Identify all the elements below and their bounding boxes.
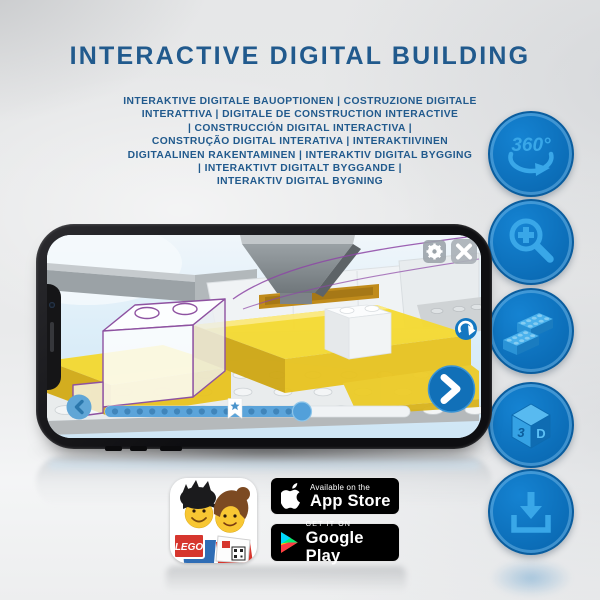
- subtitle-line: DIGITAALINEN RAKENTAMINEN | INTERAKTIV D…: [63, 149, 537, 162]
- lego-bricks-icon: [501, 301, 561, 361]
- subtitle-line: INTERAKTIV DIGITAL BYGNING: [63, 175, 537, 188]
- phone-reflection: [36, 456, 492, 508]
- app-store-badge-top-text: Available on the: [310, 483, 391, 492]
- google-play-icon: [281, 531, 298, 554]
- cube-d-label: D: [536, 426, 545, 441]
- phone-button-bump: [105, 446, 122, 451]
- lego-app-icon[interactable]: LEGO: [170, 478, 257, 563]
- promo-page: INTERACTIVE DIGITAL BUILDING INTERAKTIVE…: [0, 0, 600, 600]
- google-play-badge-bottom-text: Google Play: [306, 529, 391, 565]
- app-store-badge[interactable]: Available on the App Store: [270, 477, 400, 515]
- cube-3-label: 3: [517, 425, 525, 440]
- subtitle-line: | INTERAKTIVT DIGITALT BYGGANDE |: [63, 162, 537, 175]
- feature-icon-zoom: [488, 199, 574, 285]
- lego-app-icon-art: LEGO: [170, 478, 257, 563]
- 3d-cube-icon: 3 D: [501, 395, 561, 455]
- subtitle-line: INTERAKTIVE DIGITALE BAUOPTIONEN | COSTR…: [63, 95, 537, 108]
- subtitle-line: INTERATTIVA | DIGITALE DE CONSTRUCTION I…: [63, 108, 537, 121]
- phone-button-bump: [130, 446, 147, 451]
- scene-white-brick: [325, 305, 391, 359]
- speaker-slit: [50, 322, 54, 352]
- previous-step-button[interactable]: [67, 395, 92, 420]
- subtitle-line: CONSTRUÇÃO DIGITAL INTERATIVA | INTERAKT…: [63, 135, 537, 148]
- page-title: INTERACTIVE DIGITAL BUILDING: [0, 42, 600, 71]
- phone-button-bump: [160, 446, 182, 451]
- subtitle: INTERAKTIVE DIGITALE BAUOPTIONEN | COSTR…: [63, 95, 537, 189]
- app-store-badge-bottom-text: App Store: [310, 492, 391, 510]
- settings-button[interactable]: [423, 240, 446, 263]
- feature-icon-bricks: [488, 288, 574, 374]
- icon-reflection: [490, 559, 572, 597]
- 360-rotation-icon: 360°: [501, 124, 561, 184]
- phone-notch: [47, 284, 61, 390]
- front-camera: [49, 302, 55, 308]
- feature-icon-download: [488, 469, 574, 555]
- rotate-button[interactable]: [455, 318, 477, 340]
- subtitle-line: | CONSTRUCCIÓN DIGITAL INTERACTIVA |: [63, 122, 537, 135]
- lego-logo-text: LEGO: [175, 542, 204, 553]
- zoom-in-icon: [501, 212, 561, 272]
- download-icon: [501, 482, 561, 542]
- apple-icon: [281, 483, 302, 509]
- lego-3d-scene: [47, 235, 481, 438]
- next-step-button[interactable]: [429, 366, 475, 412]
- 360-label: 360°: [511, 135, 551, 156]
- progress-thumb[interactable]: [293, 402, 312, 421]
- google-play-badge[interactable]: GET IT ON Google Play: [270, 523, 400, 562]
- close-button[interactable]: [451, 239, 477, 264]
- badges-reflection: [166, 566, 406, 592]
- google-play-badge-top-text: GET IT ON: [306, 520, 391, 529]
- phone: [36, 224, 492, 449]
- feature-icon-3d: 3 D: [488, 382, 574, 468]
- feature-icon-360: 360°: [488, 111, 574, 197]
- phone-screen: [47, 235, 481, 438]
